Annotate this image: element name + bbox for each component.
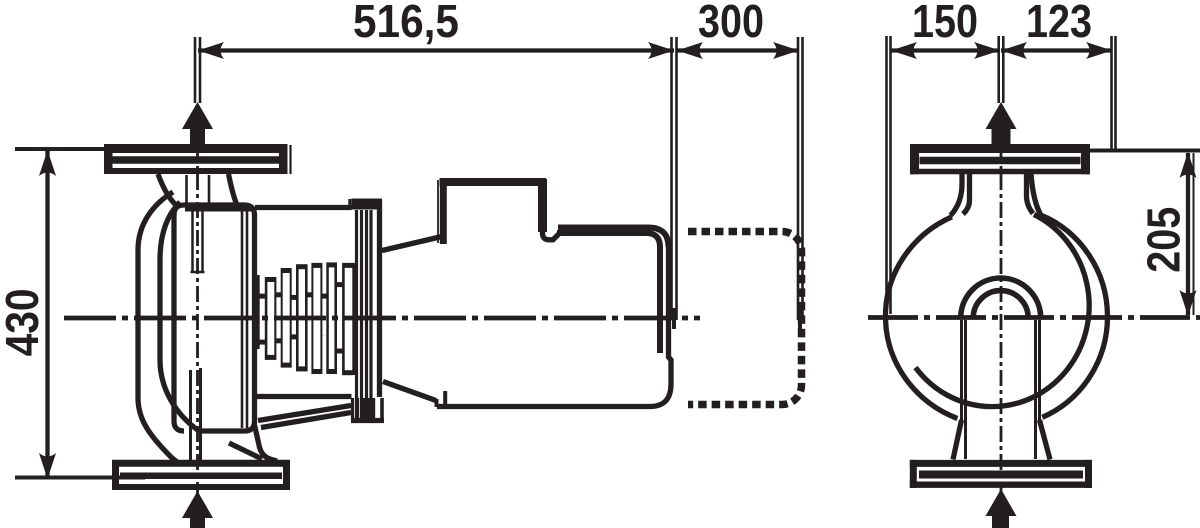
- svg-text:516,5: 516,5: [353, 0, 459, 47]
- svg-text:430: 430: [0, 288, 48, 356]
- svg-text:300: 300: [698, 0, 764, 47]
- svg-text:205: 205: [1138, 207, 1190, 273]
- svg-text:150: 150: [912, 0, 978, 47]
- svg-text:123: 123: [1026, 0, 1092, 47]
